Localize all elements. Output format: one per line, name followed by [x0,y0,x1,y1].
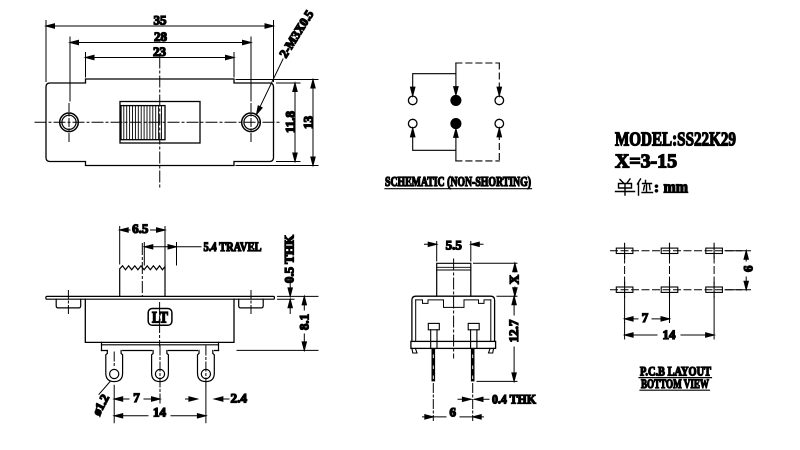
svg-text:2-M3X0.5: 2-M3X0.5 [276,8,316,60]
svg-text:0.5 THK: 0.5 THK [282,234,297,283]
svg-text:35: 35 [154,13,168,28]
svg-text:5.5: 5.5 [446,237,463,252]
svg-text:5.4 TRAVEL: 5.4 TRAVEL [204,239,262,254]
svg-text:mm: mm [664,178,689,197]
svg-text:2.4: 2.4 [231,391,248,406]
svg-text:6: 6 [740,265,755,272]
svg-text:0.4 THK: 0.4 THK [492,392,537,407]
svg-text:ø1.2: ø1.2 [89,392,112,418]
svg-text:13: 13 [301,116,316,130]
svg-text:BOTTOM VIEW: BOTTOM VIEW [641,377,709,391]
svg-text:X: X [506,274,521,284]
svg-text:X=3-15: X=3-15 [615,152,677,173]
svg-text:11.8: 11.8 [283,110,298,133]
svg-text:12.7: 12.7 [506,319,521,342]
svg-text:28: 28 [154,29,168,44]
svg-text:LT: LT [152,310,169,327]
svg-text::: : [654,180,659,196]
svg-text:SCHEMATIC (NON-SHORTING): SCHEMATIC (NON-SHORTING) [385,174,531,189]
svg-text:14: 14 [663,327,677,342]
svg-text:MODEL:SS22K29: MODEL:SS22K29 [615,130,736,151]
svg-text:7: 7 [133,390,140,405]
svg-text:6: 6 [450,405,457,420]
svg-text:8.1: 8.1 [296,314,311,330]
svg-text:14: 14 [153,405,167,420]
svg-text:23: 23 [153,44,167,59]
svg-text:7: 7 [642,310,649,325]
svg-text:6.5: 6.5 [132,221,149,236]
